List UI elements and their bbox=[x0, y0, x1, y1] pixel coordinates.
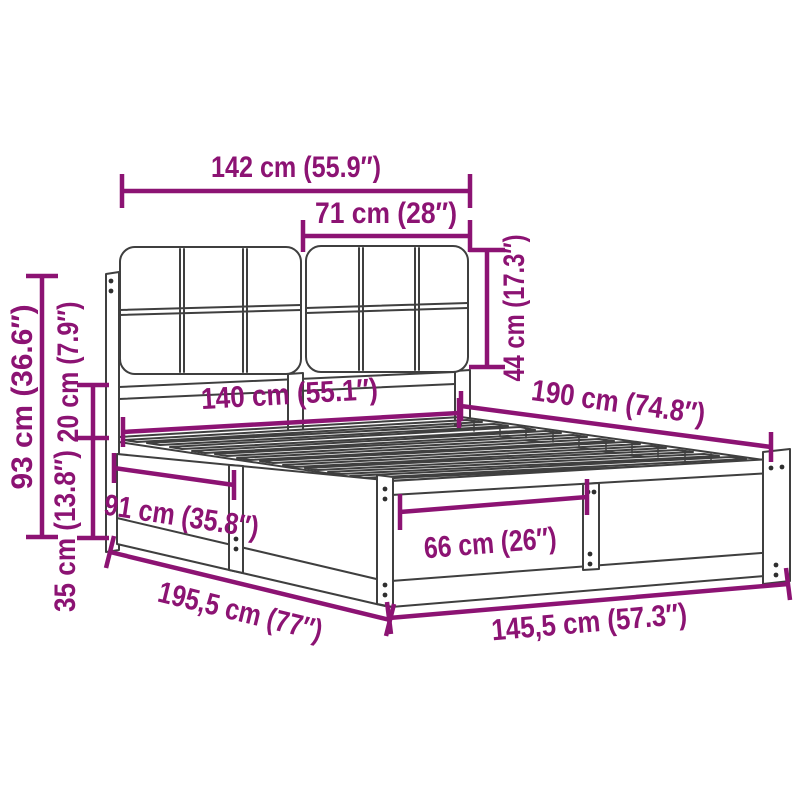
dim-label-headboard-total-width: 142 cm (55.9″) bbox=[211, 151, 381, 184]
dim-label-frame-side-height: 35 cm (13.8″) bbox=[49, 450, 82, 612]
dim-label-total-height: 93 cm (36.6″) bbox=[6, 305, 39, 490]
dim-label-headboard-cushion-width: 71 cm (28″) bbox=[315, 197, 457, 230]
product-dimension-image: 142 cm (55.9″) 71 cm (28″) 44 cm (17.3″)… bbox=[0, 0, 800, 800]
bed-dimension-diagram: 142 cm (55.9″) 71 cm (28″) 44 cm (17.3″)… bbox=[0, 0, 800, 800]
dim-label-headboard-cushion-height: 44 cm (17.3″) bbox=[498, 235, 531, 382]
dim-label-inner-length: 190 cm (74.8″) bbox=[529, 374, 707, 431]
dim-label-inner-width: 140 cm (55.1″) bbox=[200, 373, 379, 416]
dim-label-cushion-to-frame-gap: 20 cm (7.9″) bbox=[52, 302, 85, 443]
